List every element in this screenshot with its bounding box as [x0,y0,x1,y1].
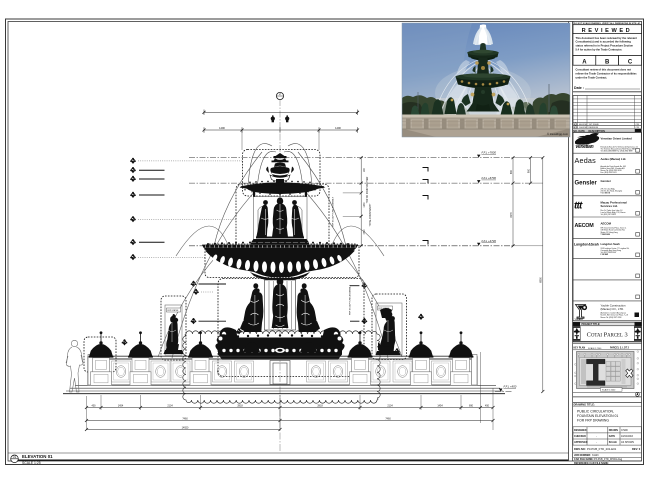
svg-text:SCALE: SCALE [609,441,618,444]
svg-text:Aedas (Macau) Ltd.: Aedas (Macau) Ltd. [601,157,627,161]
svg-text:CW: CW [636,127,639,129]
svg-text:2134: 2134 [167,404,173,407]
svg-text:DWG NO:: DWG NO: [574,447,586,451]
svg-text:Tel: (853) 2871 8855: Tel: (853) 2871 8855 [601,214,617,216]
svg-text:DRAWN: DRAWN [609,429,618,432]
svg-text:SCALE 1:7500: SCALE 1:7500 [588,347,602,350]
svg-text:2134: 2134 [387,404,393,407]
svg-text:AECOM: AECOM [601,222,612,226]
svg-text:APPROVED: APPROVED [574,441,588,444]
svg-text:venetian: venetian [576,144,594,150]
svg-text:F.F.L +6700: F.F.L +6700 [482,176,497,180]
svg-text:© traveldigg.com: © traveldigg.com [547,132,569,136]
svg-text:REFERENCE CAD FILE NAME:: REFERENCE CAD FILE NAME: [574,462,609,465]
svg-text:relieve the Trade Contractor o: relieve the Trade Contractor of its resp… [576,71,638,75]
svg-text:Tel: (853) 2882 8888 Fax: (8: Tel: (853) 2882 8888 Fax: (853) 2882 888… [601,151,633,153]
svg-text:6800: 6800 [540,277,543,283]
svg-text:P3-PUB_FTD_201-E01: P3-PUB_FTD_201-E01 [587,447,617,451]
svg-text:B: B [605,59,610,65]
svg-text:REVIEWED: REVIEWED [582,28,633,34]
svg-text:SCALE 1:2000: SCALE 1:2000 [602,388,616,391]
svg-text:690: 690 [469,404,474,407]
svg-text:900: 900 [510,169,513,174]
svg-text:KEY PLAN: KEY PLAN [574,347,586,350]
svg-text:TOP OF FOUNTAIN TIER: TOP OF FOUNTAIN TIER [366,176,369,203]
svg-text:F.F.L +7600: F.F.L +7600 [482,151,497,155]
svg-text:Gensler: Gensler [601,179,612,183]
svg-text:AECOM: AECOM [575,223,595,229]
svg-text:REVISION: REVISION [589,127,599,129]
svg-text:DRAWING TITLE:: DRAWING TITLE: [574,402,595,406]
svg-text:1454: 1454 [437,404,443,407]
svg-text:CHECKED: CHECKED [574,435,586,438]
svg-text:C: C [628,59,633,65]
svg-text:Date :: Date : [574,86,584,90]
svg-text:Consultants(s) and is accorded: Consultants(s) and is accorded the follo… [576,40,632,44]
svg-text:T 2893 0099: T 2893 0099 [601,234,611,236]
svg-text:Consultant review of this docu: Consultant review of this document does … [576,68,632,72]
svg-text:CAD FILE NAME:: CAD FILE NAME: [574,458,594,461]
svg-text:under the Trade Contract.: under the Trade Contract. [576,75,608,79]
svg-text:SCALE 1:25: SCALE 1:25 [22,461,41,465]
svg-text:FRP SCULPTURE ASSEMBLY: FRP SCULPTURE ASSEMBLY [349,284,352,315]
svg-text:10/04/2016: 10/04/2016 [621,435,634,438]
svg-text:01: 01 [13,455,17,459]
svg-text:T 1 0 8 8 8 8: T 1 0 8 8 8 8 [601,193,611,195]
svg-text:F.F.L +4730: F.F.L +4730 [482,239,497,243]
svg-text:DESIGNED: DESIGNED [574,429,587,432]
svg-text:2818: 2818 [317,404,323,407]
svg-text:1490: 1490 [219,126,225,130]
svg-text:450: 450 [485,404,490,407]
svg-text:1454: 1454 [118,404,124,407]
svg-text:YOUBLE: YOUBLE [575,319,584,321]
svg-text:F 28 3845: F 28 3845 [601,253,609,256]
svg-text:Aedas: Aedas [575,156,597,165]
svg-text:ELEVATION 01: ELEVATION 01 [22,454,53,459]
svg-text:FRP STATUE: FRP STATUE [168,309,180,312]
svg-text:JOB NUMBER:: JOB NUMBER: [574,454,591,457]
svg-text:CHAD: CHAD [621,429,628,432]
svg-text:A: A [582,59,587,65]
svg-text:Services Ltd.: Services Ltd. [601,204,619,208]
svg-text:Langdon Seah: Langdon Seah [601,242,621,246]
svg-text:14920: 14920 [182,426,189,429]
svg-text:1970: 1970 [510,212,513,218]
svg-text:CW: CW [636,124,639,126]
svg-text:DATE: DATE [609,435,616,438]
svg-text:PUBLIC CIRCULATION,: PUBLIC CIRCULATION, [577,410,614,414]
svg-text:FOUNTAIN ELEVATION 01: FOUNTAIN ELEVATION 01 [577,414,618,418]
svg-text:10/05/16: 10/05/16 [579,127,588,129]
svg-text:PARCEL 3, LOT 2: PARCEL 3, LOT 2 [610,347,630,350]
svg-text:Langdon&Seah: Langdon&Seah [574,243,599,247]
svg-text:1490: 1490 [335,126,341,130]
svg-text:Macau Tel: (853) 2875 3118: Macau Tel: (853) 2875 3118 [601,317,622,319]
svg-text:FOR FRP DRAWING: FOR FRP DRAWING [577,418,609,422]
svg-text:AS SHOWN: AS SHOWN [621,441,634,444]
svg-text:TOTAL FOUNTAIN HT: TOTAL FOUNTAIN HT [369,203,372,227]
svg-text:F.F.L +800: F.F.L +800 [504,385,517,389]
svg-text:COTAI PARCEL 3: COTAI PARCEL 3 [587,332,628,339]
svg-text:7460: 7460 [385,417,391,420]
svg-text:This document has been reviewe: This document has been reviewed by the r… [576,36,637,40]
svg-text:2818: 2818 [237,404,243,407]
svg-text:Gensler: Gensler [575,181,598,187]
svg-text:1230: 1230 [364,202,366,208]
svg-text:(Macau) CO., LTD.: (Macau) CO., LTD. [601,307,625,311]
svg-text:31123: 31123 [592,454,599,457]
svg-text:FRP SCULPTURE ASSEMBLY: FRP SCULPTURE ASSEMBLY [332,196,335,227]
svg-text:P3-PUB_FTD_FP001.dwg: P3-PUB_FTD_FP001.dwg [594,458,623,461]
svg-text:900: 900 [527,168,530,173]
svg-text:1ST ISSUE: 1ST ISSUE [589,124,600,126]
svg-text:400: 400 [92,404,97,407]
svg-text:REV: 0: REV: 0 [632,447,641,451]
svg-text:7460: 7460 [182,417,188,420]
svg-text:04/05/16: 04/05/16 [579,124,588,126]
svg-text:status referred to in Project: status referred to in Project Procedure … [576,44,634,48]
svg-text:Venetian Orient Limited: Venetian Orient Limited [601,136,633,140]
svg-text:Fax: (853) 2833 1011: Fax: (853) 2833 1011 [601,172,617,174]
svg-text:5.4 for action by the Trade Co: 5.4 for action by the Trade Contractor. [576,48,623,52]
